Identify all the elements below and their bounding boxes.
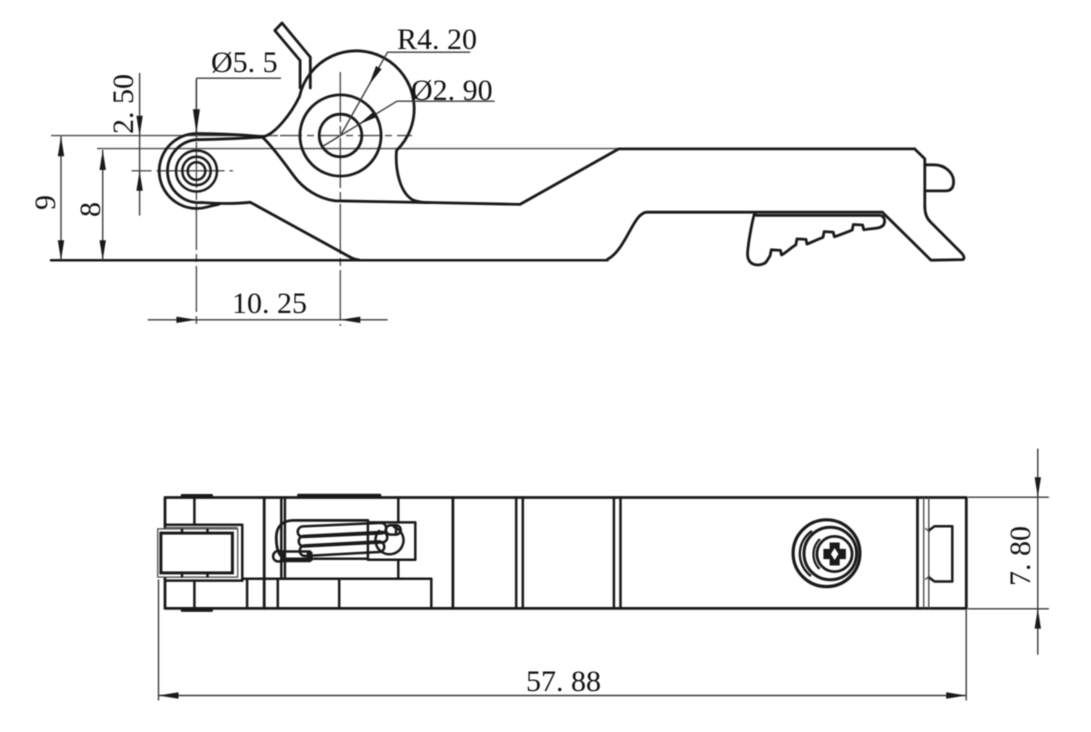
svg-text:8: 8 xyxy=(74,202,107,217)
svg-text:Ø2. 90: Ø2. 90 xyxy=(411,74,493,107)
svg-text:9: 9 xyxy=(29,195,62,210)
svg-text:Ø5. 5: Ø5. 5 xyxy=(211,46,278,79)
svg-text:10. 25: 10. 25 xyxy=(232,287,307,320)
svg-text:2. 50: 2. 50 xyxy=(107,74,140,134)
svg-text:R4. 20: R4. 20 xyxy=(397,23,477,56)
svg-text:57. 88: 57. 88 xyxy=(526,665,601,698)
svg-text:7. 80: 7. 80 xyxy=(1004,526,1037,586)
